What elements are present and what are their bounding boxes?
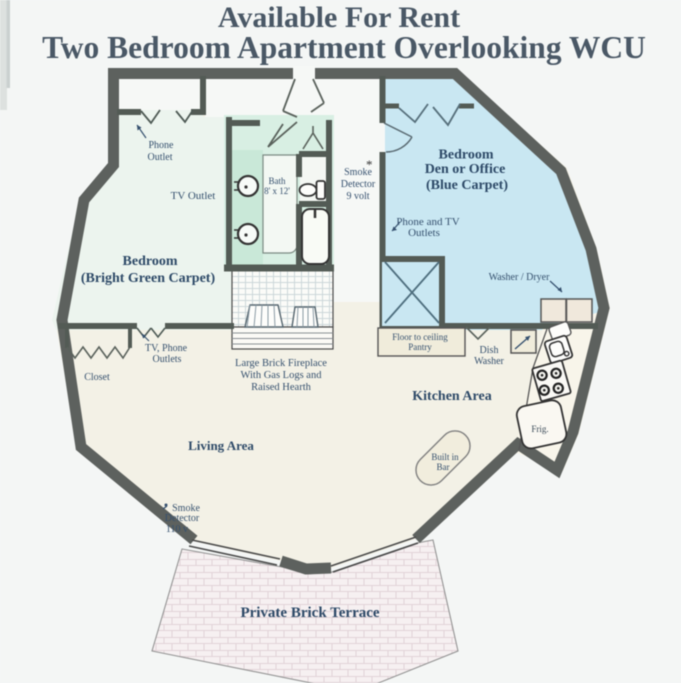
svg-text:9 volt: 9 volt bbox=[346, 191, 369, 202]
svg-text:(Bright Green Carpet): (Bright Green Carpet) bbox=[81, 271, 216, 286]
svg-text:Raised Hearth: Raised Hearth bbox=[251, 382, 312, 393]
svg-text:Frig.: Frig. bbox=[531, 424, 548, 434]
svg-text:Built in: Built in bbox=[431, 452, 459, 462]
svg-text:Outlets: Outlets bbox=[408, 227, 440, 239]
svg-text:Bedroom: Bedroom bbox=[123, 254, 178, 269]
svg-text:Living Area: Living Area bbox=[188, 438, 254, 453]
svg-text:Dish: Dish bbox=[480, 345, 499, 356]
svg-text:*: * bbox=[366, 157, 373, 172]
svg-text:Two Bedroom Apartment Overlook: Two Bedroom Apartment Overlooking WCU bbox=[42, 30, 646, 65]
svg-text:110 v: 110 v bbox=[166, 524, 188, 535]
svg-text:Detector: Detector bbox=[341, 179, 376, 190]
svg-text:Floor to ceiling: Floor to ceiling bbox=[392, 332, 448, 342]
svg-text:Bath: Bath bbox=[269, 176, 286, 186]
svg-text:Washer: Washer bbox=[474, 356, 504, 367]
svg-text:Den or Office: Den or Office bbox=[425, 162, 506, 177]
svg-text:Pantry: Pantry bbox=[408, 342, 432, 352]
svg-text:Detector: Detector bbox=[165, 513, 200, 524]
svg-text:TV Outlet: TV Outlet bbox=[171, 190, 216, 202]
svg-text:Kitchen Area: Kitchen Area bbox=[412, 389, 491, 404]
svg-text:Bedroom: Bedroom bbox=[439, 148, 494, 163]
svg-text:With Gas Logs and: With Gas Logs and bbox=[241, 370, 323, 381]
svg-text:TV, Phone: TV, Phone bbox=[145, 343, 188, 354]
svg-text:(Blue Carpet): (Blue Carpet) bbox=[426, 178, 508, 193]
svg-text:Bar: Bar bbox=[437, 462, 450, 472]
svg-text:Closet: Closet bbox=[84, 372, 110, 383]
svg-text:Private Brick Terrace: Private Brick Terrace bbox=[240, 605, 379, 621]
svg-text:Large Brick Fireplace: Large Brick Fireplace bbox=[235, 358, 327, 369]
svg-text:Phone: Phone bbox=[149, 140, 175, 151]
svg-text:Outlets: Outlets bbox=[153, 354, 182, 365]
svg-text:Outlet: Outlet bbox=[148, 152, 173, 163]
svg-text:8' x 12': 8' x 12' bbox=[264, 186, 290, 196]
svg-text:Washer / Dryer: Washer / Dryer bbox=[489, 272, 551, 283]
